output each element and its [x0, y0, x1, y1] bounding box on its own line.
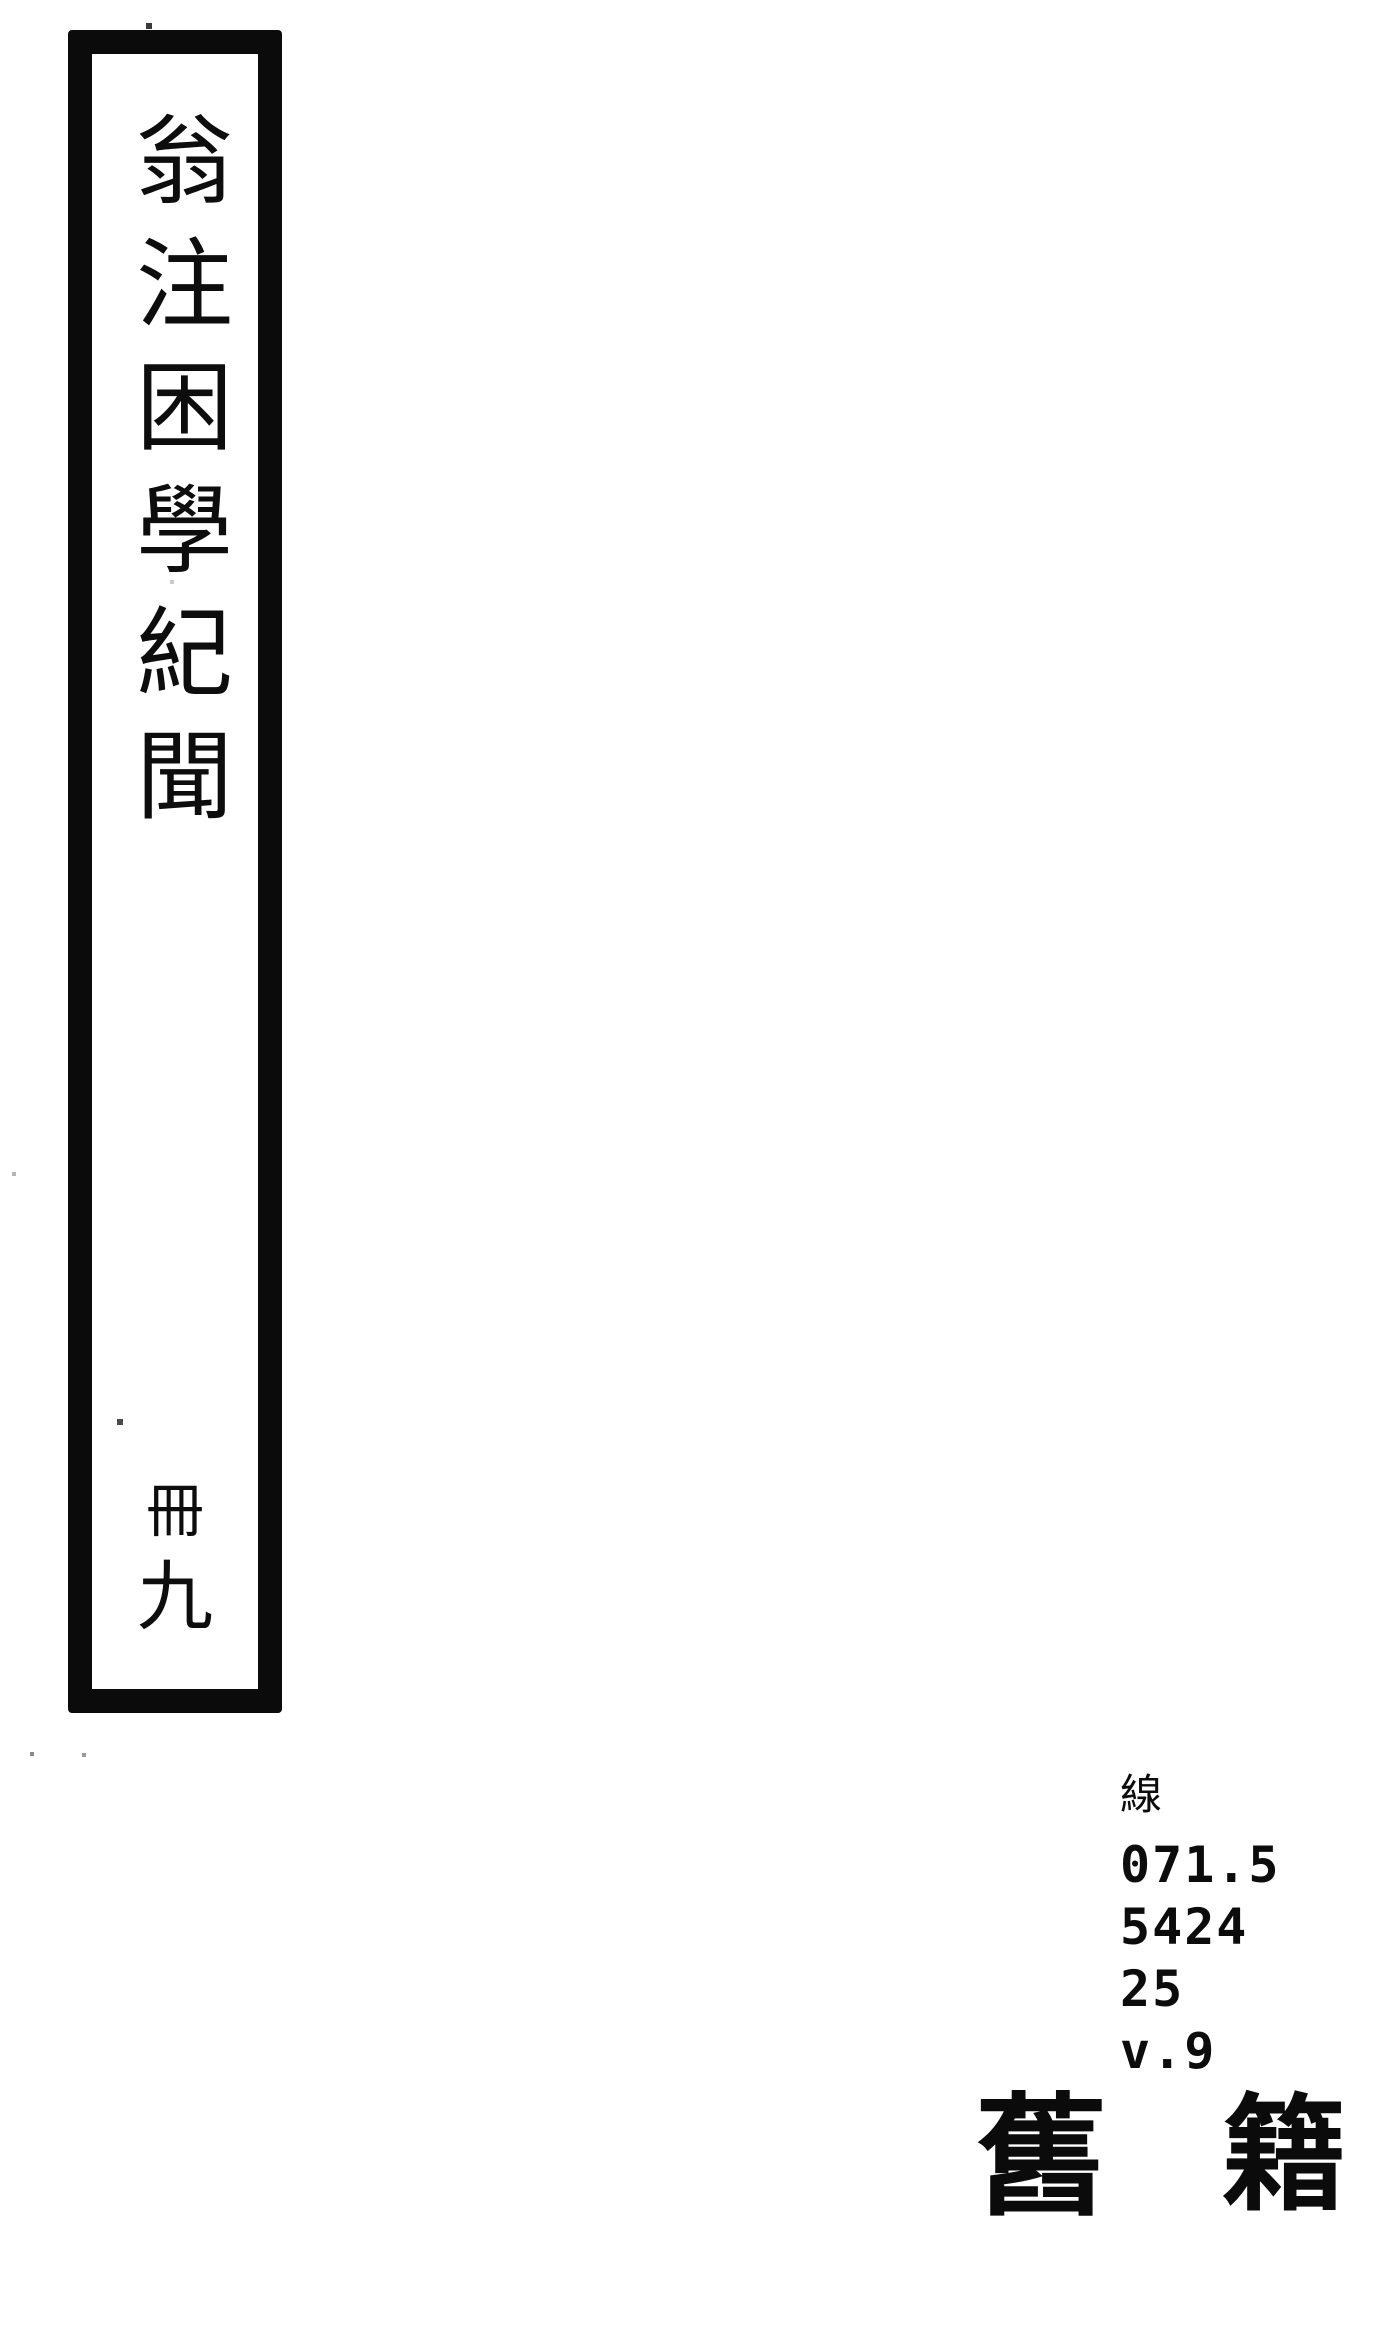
call-number-line-volume: v.9 [1120, 2020, 1281, 2082]
call-number-block: 線 071.5 5424 25 v.9 [1120, 1772, 1281, 2082]
scanned-book-cover: 翁注困學紀聞 冊 九 線 071.5 5424 25 v.9 舊 籍 [0, 0, 1395, 2339]
call-number-line-classification: 071.5 [1120, 1834, 1281, 1896]
category-char-old: 舊 [975, 2088, 1107, 2228]
call-number-line-author: 5424 [1120, 1896, 1281, 1958]
spine-title: 翁注困學紀聞 [122, 110, 228, 848]
scan-dust-specks [0, 0, 4, 4]
call-number-line-item: 25 [1120, 1958, 1281, 2020]
category-char-books: 籍 [1222, 2088, 1347, 2222]
volume-number: 九 [68, 1556, 282, 1638]
volume-prefix: 冊 [68, 1480, 282, 1542]
category-label: 舊 籍 [975, 2088, 1347, 2228]
binding-type-label: 線 [1120, 1772, 1281, 1818]
